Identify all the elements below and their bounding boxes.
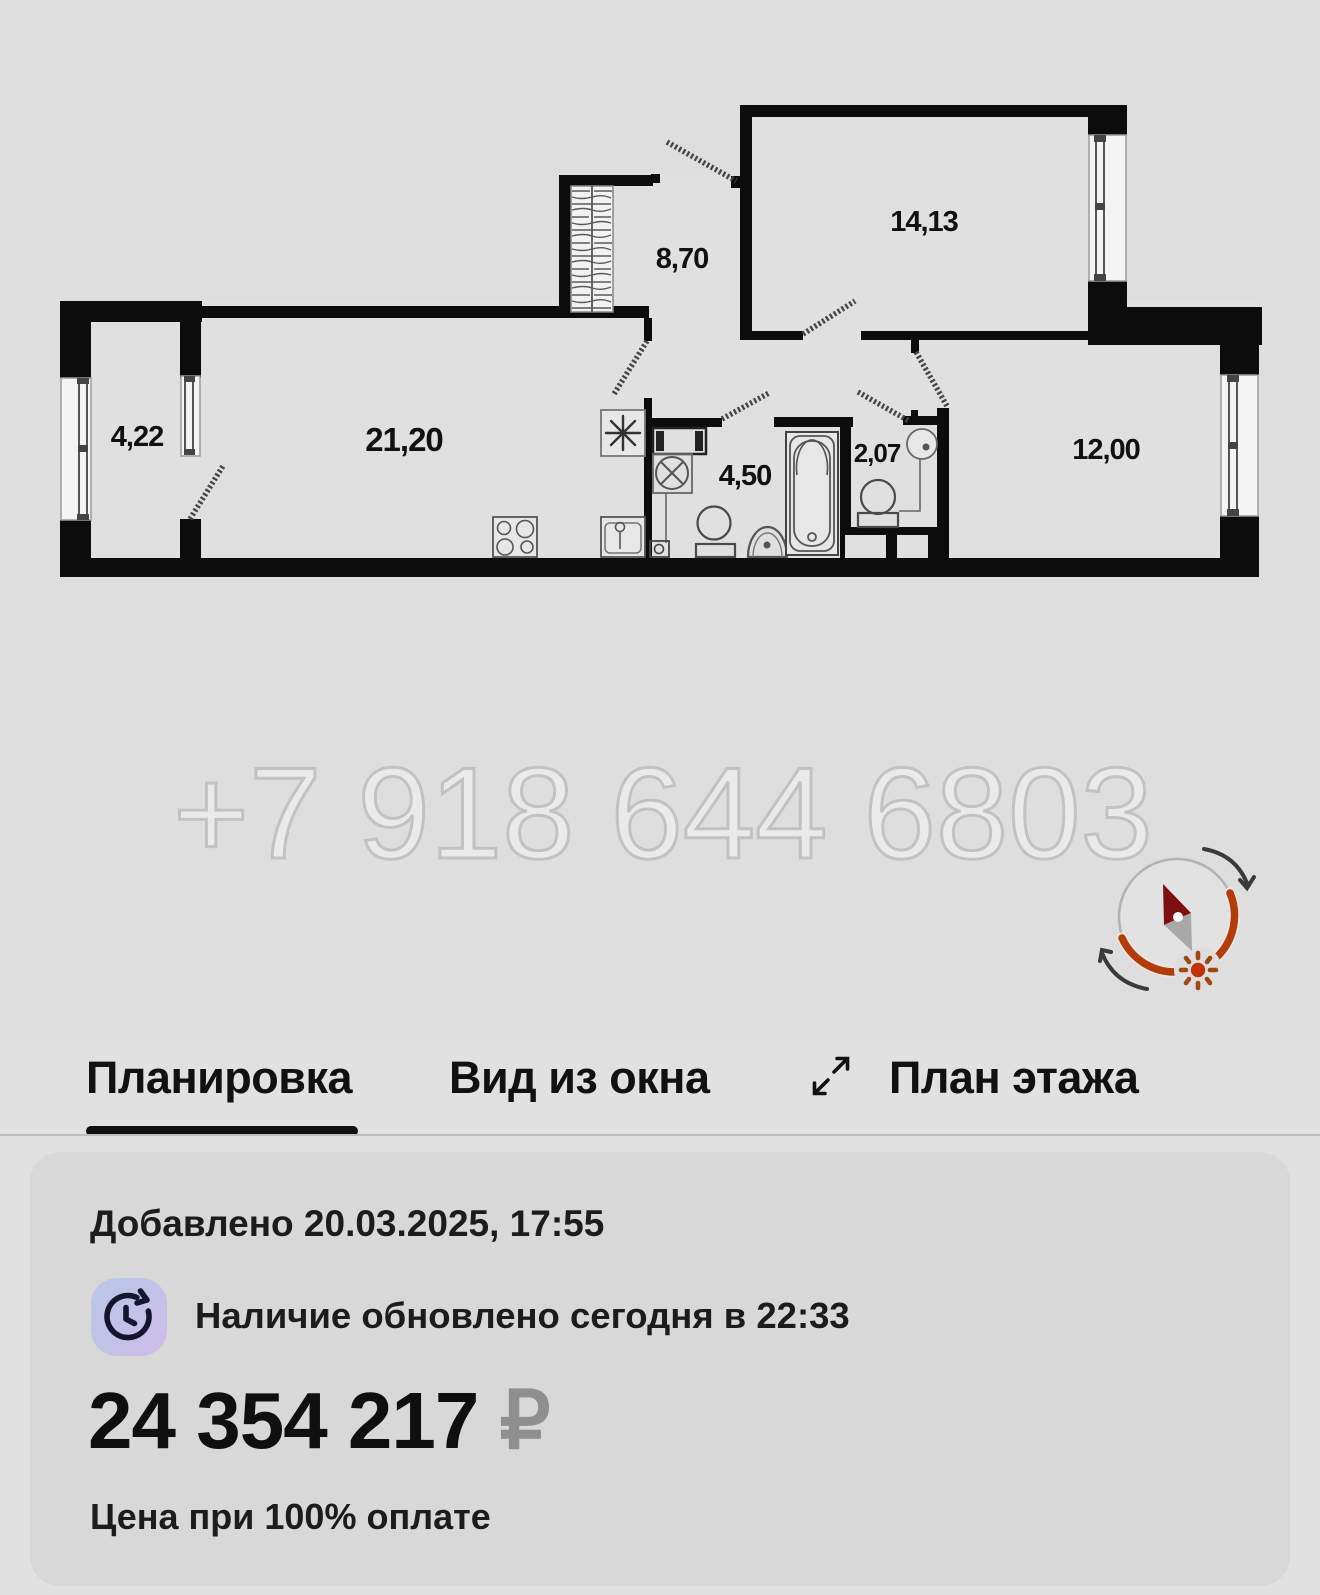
svg-text:21,20: 21,20: [365, 421, 443, 458]
svg-text:8,70: 8,70: [656, 243, 708, 275]
svg-text:4,22: 4,22: [111, 421, 163, 453]
svg-text:4,50: 4,50: [719, 460, 771, 492]
svg-text:+7 918 644 6803: +7 918 644 6803: [173, 740, 1153, 886]
svg-text:12,00: 12,00: [1072, 434, 1140, 466]
svg-text:2,07: 2,07: [854, 438, 901, 468]
svg-text:14,13: 14,13: [890, 206, 958, 238]
